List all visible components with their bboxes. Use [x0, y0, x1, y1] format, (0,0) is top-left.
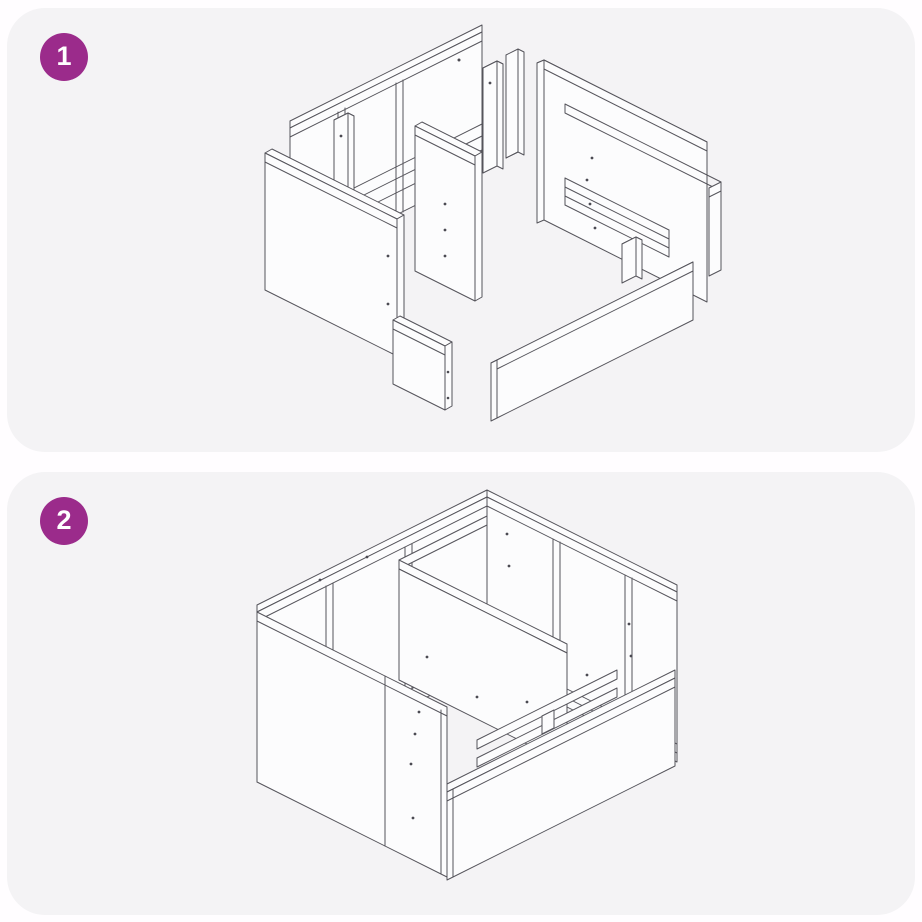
step-1-exploded-assembly-illustration: [7, 8, 915, 452]
divider-panel: [415, 122, 482, 301]
front-square-panel: [393, 316, 452, 410]
front-long-panel: [491, 262, 693, 421]
assembly-instruction-page: { "page": { "background": "#FFFDFF" }, "…: [0, 0, 922, 922]
center-planks: [483, 49, 524, 173]
step-2-assembled-box-illustration: [7, 472, 915, 915]
step-1-card: 1: [7, 8, 915, 452]
step-2-card: 2: [7, 472, 915, 915]
